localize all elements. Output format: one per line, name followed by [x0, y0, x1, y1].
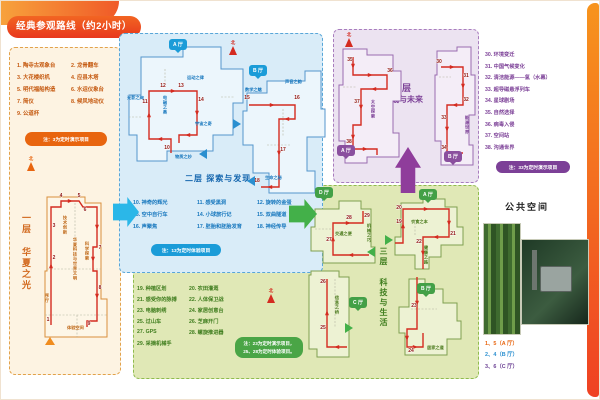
map-area-label: 生命之秘 — [265, 174, 283, 181]
map-area-label: 声音之韵 — [284, 78, 302, 85]
public-space-title: 公共空间 — [505, 200, 549, 213]
map-area-label: 宇宙之奇 — [195, 120, 213, 127]
exhibit-item: 36. 病毒入侵 — [485, 121, 595, 128]
machine-pipe-shape — [532, 250, 537, 290]
exhibit-item: 24. 家居创意台 — [189, 307, 245, 314]
exhibit-item: 32. 清洁能源——氢（水幕） — [485, 74, 595, 81]
exhibit-item: 5. 明代福船构造 — [17, 85, 71, 93]
map-area-label: 光影之绚 — [126, 94, 145, 101]
exhibit-item: 8. 候风地动仪 — [71, 97, 117, 105]
exhibit-item: 22. 人体保卫战 — [189, 296, 245, 303]
floor3-hall-a-map: 19202122衣食之本健康之路 — [391, 195, 467, 271]
route-stop-number: 33 — [441, 115, 447, 121]
route-stop-number: 10 — [164, 145, 170, 151]
north-triangle-shape — [229, 46, 237, 55]
map-area-label: 衣食之本 — [411, 218, 429, 225]
exhibit-item: 14. 小球旅行记 — [197, 211, 257, 218]
exhibit-item: 38. 沟通世界 — [485, 144, 595, 151]
route-stop-number: 8 — [99, 285, 102, 291]
floor3-note-line2: 25、28为定时体验项目。 — [235, 348, 303, 355]
route-stop-number: 37 — [354, 99, 360, 105]
map-area-label-vertical: 明 — [73, 274, 77, 281]
floor4-note-pill: 注：33为定时演示项目 — [496, 161, 570, 173]
route-stop-number: 25 — [320, 325, 326, 331]
floor1-note-pill: 注：3为定时演示项目 — [25, 132, 107, 146]
floor3-caption: 三层 科技与生活 — [378, 247, 389, 328]
route-stop-number: 15 — [244, 95, 250, 101]
route-stop-number: 16 — [294, 95, 300, 101]
floor1-exhibit-list: 1. 陶寺古观象台2. 龙骨翻车3. 大花楼织机4. 应县木塔5. 明代福船构造… — [17, 61, 119, 117]
route-stop-number: 35 — [347, 57, 353, 63]
floor1-hall-map: 123456789序厅技术创新华夏科技与世界文明科学探索体验空间 — [37, 149, 123, 349]
floor1-caption: 一层 华夏之光 — [20, 213, 33, 291]
hall-badge: A 厅 — [419, 189, 437, 200]
public-space-notes: 1、5（A 厅）2、4（B 厅）3、6（C 厅） — [485, 339, 518, 373]
flow-connector-triangle-icon — [385, 235, 393, 245]
hall-badge: D 厅 — [315, 187, 333, 198]
exhibit-item: 26. 芝麻开门 — [189, 318, 245, 325]
route-stop-number: 23 — [411, 303, 417, 309]
flow-connector-triangle-icon — [199, 149, 207, 159]
route-stop-number: 14 — [198, 97, 204, 103]
map-area-label: 物质之妙 — [175, 153, 193, 160]
route-stop-number: 3 — [53, 223, 56, 229]
exhibit-item: 33. 超导磁悬浮列车 — [485, 86, 595, 93]
exhibit-item: 35. 自然选择 — [485, 109, 595, 116]
museum-route-map-poster: 经典参观路线（约2小时） 1. 陶寺古观象台2. 龙骨翻车3. 大花楼织机4. … — [0, 0, 600, 400]
flow-connector-triangle-icon — [45, 337, 55, 345]
map-area-label: 居家之道 — [427, 344, 445, 351]
exhibit-item: 6. 水运仪象台 — [71, 85, 117, 93]
exhibit-item: 13. 空中自行车 — [133, 211, 197, 218]
map-area-label: 体验空间 — [67, 324, 84, 331]
route-stop-number: 31 — [463, 73, 469, 79]
flow-connector-triangle-icon — [247, 176, 255, 186]
machine-body-shape — [540, 266, 572, 292]
floor3-exhibit-list: 19. 种植区划20. 农田灌溉21. 感受你的脉搏22. 人体保卫战23. 电… — [137, 285, 245, 347]
exhibit-item: 7. 简仪 — [17, 97, 71, 105]
exhibit-item: 3. 大花楼织机 — [17, 73, 71, 81]
north-triangle-shape — [267, 294, 275, 303]
north-arrow-icon: 北 — [265, 289, 277, 303]
exhibit-item: 4. 应县木塔 — [71, 73, 117, 81]
route-stop-number: 4 — [60, 193, 63, 199]
exhibit-item: 34. 星球剧场 — [485, 97, 595, 104]
route-stop-number: 12 — [160, 83, 166, 89]
flow-connector-triangle-icon — [233, 119, 241, 129]
exhibit-item: 17. 胚胎和胚胎发育 — [197, 223, 257, 230]
route-stop-number: 5 — [78, 193, 81, 199]
public-space-photo-bamboo — [483, 223, 521, 335]
exhibit-item: 16. 声聚焦 — [133, 223, 197, 230]
route-stop-number: 27 — [326, 237, 332, 243]
map-area-label: 运动之律 — [187, 74, 205, 81]
exhibit-item: 37. 空间站 — [485, 132, 595, 139]
exhibit-item: 21. 感受你的脉搏 — [137, 296, 189, 303]
exhibit-item: 20. 农田灌溉 — [189, 285, 245, 292]
floor4-exhibit-list: 30. 环境变迁31. 中国气候变化32. 清洁能源——氢（水幕）33. 超导磁… — [485, 51, 595, 151]
public-space-note-line: 1、5（A 厅） — [485, 339, 518, 350]
route-stop-number: 6 — [84, 207, 87, 213]
route-stop-number: 22 — [416, 239, 422, 245]
north-arrow-icon: 北 — [25, 157, 37, 171]
hall-badge: B 厅 — [417, 283, 435, 294]
exhibit-item: 9. 公道杯 — [17, 109, 71, 117]
route-stop-number: 7 — [99, 245, 102, 251]
route-stop-number: 17 — [280, 147, 286, 153]
route-stop-number: 36 — [387, 68, 393, 74]
exhibit-item: 10. 神奇的辉光 — [133, 199, 197, 206]
hall-badge: B 厅 — [444, 151, 462, 162]
floor3-note-line1: 注：23为定时演示项目， — [235, 340, 303, 347]
exhibit-item: 27. GPS — [137, 329, 189, 336]
route-stop-number: 20 — [396, 205, 402, 211]
flow-connector-triangle-icon — [367, 247, 375, 257]
route-stop-number: 26 — [320, 279, 326, 285]
public-space-photo-machine — [521, 239, 589, 325]
floor2-hall-a-map: 1011121314光影之绚电磁之奥运动之律宇宙之奇物质之妙 — [125, 37, 251, 173]
route-stop-number: 1 — [47, 317, 50, 323]
exhibit-item: 2. 龙骨翻车 — [71, 61, 117, 69]
north-triangle-shape — [345, 38, 353, 47]
exhibit-item: 1. 陶寺古观象台 — [17, 61, 71, 69]
hall-badge: A 厅 — [169, 39, 187, 50]
route-stop-number: 18 — [254, 178, 260, 184]
route-stop-number: 9 — [88, 321, 91, 327]
north-arrow-icon: 北 — [227, 41, 239, 55]
route-stop-number: 21 — [450, 231, 456, 237]
exhibit-item: 25. 过山车 — [137, 318, 189, 325]
flow-connector-triangle-icon — [345, 323, 353, 333]
route-stop-number: 32 — [463, 97, 469, 103]
hall-outline — [309, 271, 349, 357]
exhibit-item: 31. 中国气候变化 — [485, 63, 595, 70]
floor3-hall-c-map: 2526信息之桥 — [307, 267, 353, 361]
exhibit-item: 11. 感受黑洞 — [197, 199, 257, 206]
exhibit-item: 30. 环境变迁 — [485, 51, 595, 58]
route-stop-number: 13 — [178, 83, 184, 89]
hall-badge: A 厅 — [337, 145, 355, 156]
route-stop-number: 29 — [364, 213, 370, 219]
route-stop-number: 28 — [346, 215, 352, 221]
exhibit-item: 28. 螺旋推进器 — [189, 329, 245, 336]
floor3-note-pill: 注：23为定时演示项目， 25、28为定时体验项目。 — [235, 337, 303, 358]
floor3-hall-d-map: 272829交通之便机械之巧 — [309, 197, 377, 269]
route-stop-number: 19 — [396, 219, 402, 225]
floor2-note-pill: 注：13为定时体验项目 — [151, 244, 221, 256]
route-stop-number: 24 — [408, 348, 414, 354]
route-stop-number: 30 — [436, 59, 442, 65]
exhibit-item: 23. 电脑刺绣 — [137, 307, 189, 314]
map-area-label: 数学之魅 — [245, 86, 263, 93]
public-space-note-line: 3、6（C 厅） — [485, 362, 518, 373]
exhibit-item: 19. 种植区划 — [137, 285, 189, 292]
route-stop-number: 2 — [53, 255, 56, 261]
map-area-label: 交通之便 — [335, 230, 353, 237]
hall-badge: B 厅 — [249, 65, 267, 76]
exhibit-item: 29. 采摘机械手 — [137, 340, 189, 347]
public-space-note-line: 2、4（B 厅） — [485, 350, 518, 361]
north-arrow-icon: 北 — [343, 33, 355, 47]
hall-badge: C 厅 — [349, 297, 367, 308]
north-triangle-shape — [27, 162, 35, 171]
